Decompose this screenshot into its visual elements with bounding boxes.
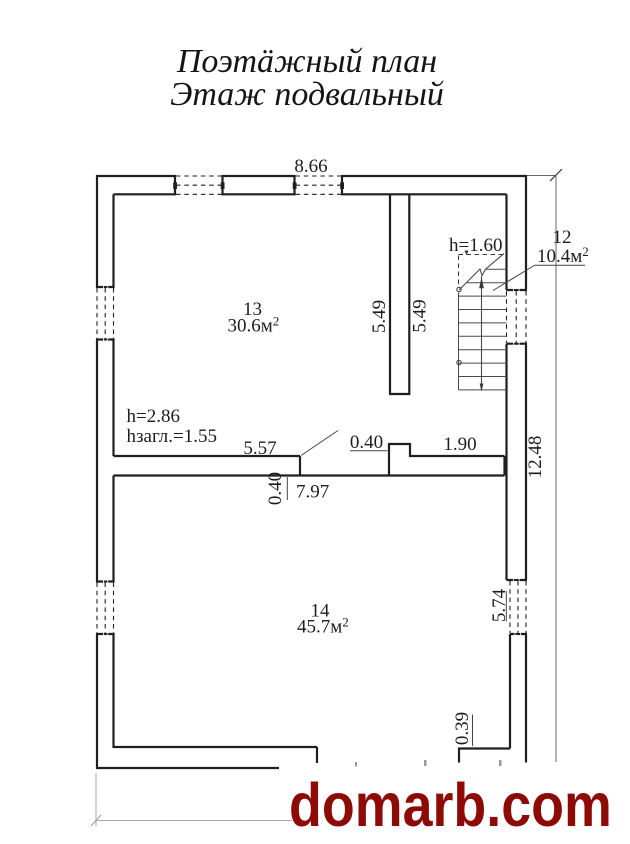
svg-text:5.57: 5.57 xyxy=(243,438,276,459)
svg-text:45.7м2: 45.7м2 xyxy=(297,615,349,638)
svg-text:0.39: 0.39 xyxy=(452,712,473,745)
svg-text:5.49: 5.49 xyxy=(410,299,431,332)
svg-text:5.74: 5.74 xyxy=(489,588,510,622)
svg-text:30.6м2: 30.6м2 xyxy=(228,314,280,337)
svg-text:7.97: 7.97 xyxy=(296,482,329,503)
svg-text:8.66: 8.66 xyxy=(294,156,327,177)
svg-text:h=2.86: h=2.86 xyxy=(127,406,180,427)
svg-text:1.90: 1.90 xyxy=(443,434,476,455)
svg-text:h=1.60: h=1.60 xyxy=(449,235,502,256)
svg-text:0.40: 0.40 xyxy=(350,432,383,453)
svg-text:hзагл.=1.55: hзагл.=1.55 xyxy=(127,426,217,447)
svg-text:12: 12 xyxy=(553,227,572,248)
svg-text:10.4м2: 10.4м2 xyxy=(537,244,589,267)
svg-text:0.40: 0.40 xyxy=(265,472,286,505)
svg-text:5.49: 5.49 xyxy=(369,300,390,333)
svg-text:12.48: 12.48 xyxy=(525,436,546,479)
